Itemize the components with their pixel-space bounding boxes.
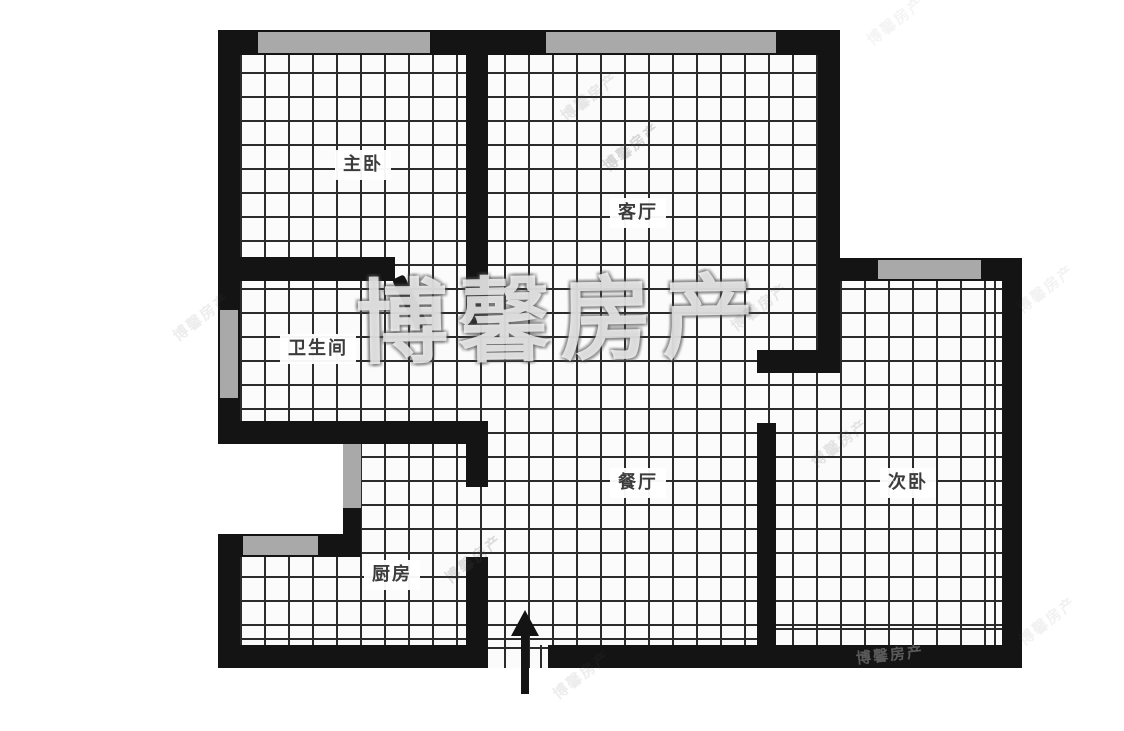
watermark-small: 博馨房产 (1015, 263, 1078, 317)
label-master-bedroom: 主卧 (335, 150, 391, 180)
wall-kitchen-east-upper (466, 421, 488, 487)
wall-living-east (818, 30, 840, 373)
label-bathroom: 卫生间 (280, 334, 356, 364)
wall-bathroom-south (218, 421, 488, 444)
window-kitchen-north (243, 536, 318, 555)
wall-dining-second-bedroom-divider (757, 423, 776, 668)
floor-grid-entry-gap (488, 645, 548, 668)
wall-notch-east (343, 505, 361, 534)
entrance-arrow-stem (521, 632, 529, 694)
wall-bottom-east (548, 645, 1022, 668)
watermark-small: 博馨房产 (865, 0, 928, 48)
wall-bottom-west (218, 645, 488, 668)
window-second-bedroom-north (878, 260, 981, 279)
floor-plan-canvas: 主卧 客厅 卫生间 餐厅 次卧 厨房 博馨房产 博馨房产 博馨房产 博馨房产 博… (0, 0, 1124, 731)
label-dining-room: 餐厅 (610, 468, 666, 498)
label-kitchen: 厨房 (364, 560, 420, 590)
floor-grid-second-bedroom (776, 281, 1002, 645)
watermark-large: 博馨房产 (355, 266, 777, 375)
label-second-bedroom: 次卧 (880, 468, 936, 498)
window-notch-east (343, 444, 361, 508)
window-bathroom-left (220, 310, 238, 398)
watermark-small: 博馨房产 (1017, 595, 1080, 649)
window-master-top (258, 32, 430, 53)
exterior-notch (240, 444, 343, 534)
wall-right-exterior (1002, 258, 1022, 668)
window-living-top (546, 32, 776, 53)
label-living-room: 客厅 (610, 198, 666, 228)
